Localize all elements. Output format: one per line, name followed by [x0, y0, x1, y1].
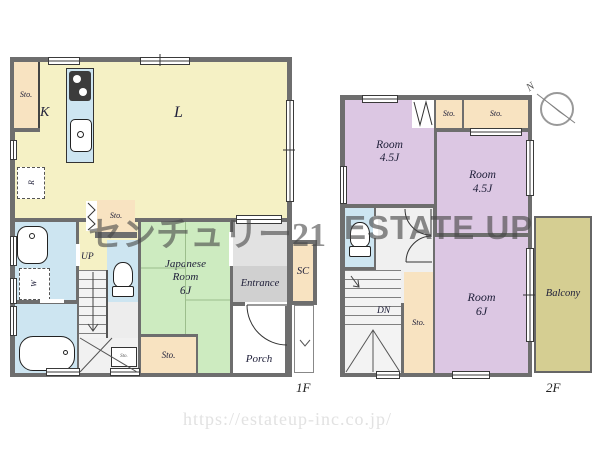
storage-2f-hall-label: Sto.: [412, 318, 425, 328]
living-label: L: [174, 104, 183, 122]
storage-hall-1f: Sto.: [97, 200, 135, 232]
hall-lower-1f: [108, 302, 138, 338]
balcony: Balcony: [534, 216, 592, 373]
window: [110, 368, 140, 376]
vanity-sink-icon: [17, 226, 48, 264]
window: [10, 306, 17, 336]
door-opening: [373, 216, 378, 238]
entrance: Entrance: [233, 266, 287, 302]
window: [10, 236, 17, 266]
shoe-closet: SC: [293, 244, 313, 301]
japanese-room-size: 6J: [180, 284, 191, 298]
compass-needle-line: [537, 94, 575, 123]
understair-closet-label: Sto.: [120, 354, 128, 360]
storage-hall-label: Sto.: [110, 211, 122, 220]
kitchen-label: K: [40, 105, 49, 121]
japanese-room-notch: [198, 334, 230, 373]
entrance-approach: [294, 305, 314, 373]
floor1-label: 1F: [296, 381, 310, 396]
room-a-name: Room: [376, 139, 403, 152]
wall-stub: [14, 128, 40, 132]
storage-2f-a: Sto.: [436, 100, 462, 128]
folding-door: [86, 201, 97, 231]
japanese-room-label-1: Japanese: [165, 258, 206, 271]
storage-2f-b: Sto.: [464, 100, 528, 128]
door-opening: [40, 299, 64, 303]
window: [10, 278, 17, 304]
stairs-up-label: UP: [81, 252, 94, 263]
stairs-2f-lower: [345, 330, 401, 373]
window: [286, 100, 294, 202]
bathtub-drain: [63, 350, 68, 355]
sink-drain: [77, 131, 84, 138]
porch: Porch: [233, 306, 285, 373]
toilet-tank-1f: [112, 286, 134, 297]
bathtub-icon: [19, 336, 75, 371]
room-b-size: 4.5J: [473, 183, 492, 196]
storage-top-left: Sto.: [14, 62, 40, 128]
refrigerator-space: R: [17, 167, 45, 199]
toilet-icon-2f: [350, 222, 370, 248]
storage-tatami-label: Sto.: [162, 350, 176, 360]
sliding-door: [236, 215, 282, 224]
room-b-2f: Room 4.5J: [437, 132, 528, 233]
room-a-size: 4.5J: [380, 152, 399, 165]
porch-label: Porch: [246, 353, 272, 366]
door-opening: [76, 244, 80, 266]
window: [10, 140, 17, 160]
washer-space: W: [19, 268, 50, 300]
window: [362, 95, 398, 103]
storage-2f-b-label: Sto.: [490, 109, 502, 118]
wall-stub: [95, 232, 137, 238]
burner: [73, 75, 81, 83]
toilet-tank-2f: [349, 246, 371, 257]
sink-icon: [70, 119, 92, 152]
japanese-room-label-2: Room: [173, 271, 199, 284]
burner: [79, 88, 87, 96]
window: [46, 368, 80, 376]
room-b-name: Room: [469, 169, 496, 182]
front-door-opening: [245, 302, 287, 306]
door-opening: [229, 232, 233, 266]
toilet-icon-1f: [113, 262, 133, 288]
balcony-label: Balcony: [546, 288, 580, 300]
understair-closet: Sto.: [111, 347, 137, 367]
window: [526, 140, 534, 196]
window: [140, 57, 190, 65]
washer-label: W: [30, 281, 39, 288]
room-c-name: Room: [468, 291, 496, 305]
window: [48, 57, 80, 65]
storage-2f-a-label: Sto.: [443, 109, 455, 118]
storage-tatami: Sto.: [141, 337, 196, 373]
stairs-2f: [345, 270, 401, 330]
stove-icon: [69, 71, 91, 101]
entrance-hall-upper: [233, 222, 287, 266]
window: [340, 166, 347, 204]
stairs-1f: [79, 270, 108, 338]
sliding-door: [470, 128, 522, 136]
window: [376, 371, 400, 379]
window: [452, 371, 490, 379]
north-label: N: [524, 80, 537, 95]
shoe-closet-label: SC: [297, 266, 309, 278]
floorplan-image: K L Sto. R W Sto. UP Sto.: [0, 0, 600, 450]
room-living-dining-kitchen: [15, 62, 287, 218]
refrigerator-label: R: [26, 181, 35, 186]
compass-needle: [537, 94, 575, 123]
japanese-room: Japanese Room 6J: [141, 222, 230, 334]
room-c-2f: Room 6J: [435, 237, 528, 373]
faucet: [29, 233, 35, 239]
storage-top-left-label: Sto.: [20, 90, 32, 99]
entrance-label: Entrance: [241, 278, 280, 290]
room-c-size: 6J: [476, 305, 487, 319]
watermark-url: https://estateup-inc.co.jp/: [183, 409, 392, 430]
balcony-door-window: [526, 248, 534, 342]
closet-folding-door: [412, 100, 434, 128]
compass-icon: [541, 93, 573, 125]
floor2-label: 2F: [546, 381, 560, 396]
storage-2f-hall: Sto.: [404, 272, 433, 373]
stairs-down-label: DN: [377, 306, 390, 317]
